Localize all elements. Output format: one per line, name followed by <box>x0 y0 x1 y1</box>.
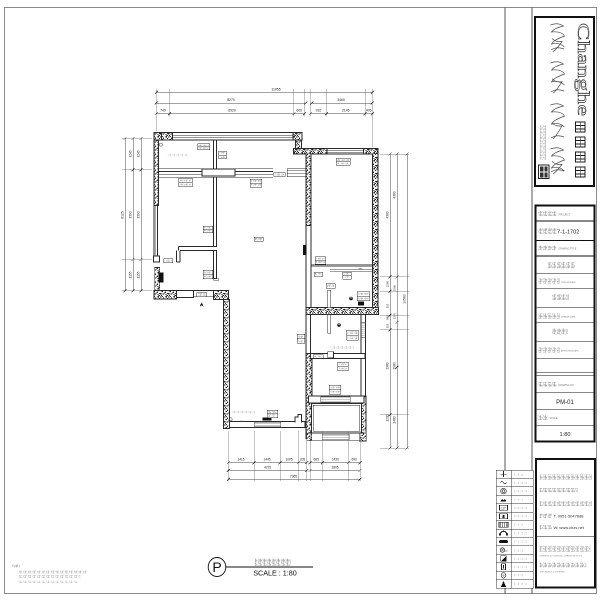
svg-text:1240: 1240 <box>137 150 141 157</box>
svg-text:APPROVED/DATE: APPROVED/DATE <box>561 350 579 353</box>
svg-text:6920: 6920 <box>228 109 236 113</box>
svg-text:2980: 2980 <box>386 362 390 369</box>
svg-text:1560: 1560 <box>386 280 390 287</box>
svg-text:1560: 1560 <box>393 284 397 291</box>
svg-text:SCALE:: SCALE: <box>550 417 559 420</box>
svg-text:205: 205 <box>300 458 306 462</box>
svg-text:DRAWINGS NOT DATED ALL DIMENSI: DRAWINGS NOT DATED ALL DIMENSIONS IN SIT… <box>540 555 584 558</box>
svg-text:4300: 4300 <box>386 211 390 218</box>
svg-text:4360: 4360 <box>393 191 397 198</box>
svg-text:1240: 1240 <box>129 150 133 157</box>
svg-text:3460: 3460 <box>337 98 345 102</box>
svg-text:7365: 7365 <box>290 474 297 478</box>
svg-text:2145: 2145 <box>342 109 350 113</box>
svg-text:1445: 1445 <box>263 458 270 462</box>
svg-text:DRAWING TITLE: DRAWING TITLE <box>559 248 577 251</box>
svg-text:1415: 1415 <box>237 458 244 462</box>
svg-text:690: 690 <box>352 458 358 462</box>
svg-text:3390: 3390 <box>137 211 141 218</box>
svg-text:LP: LP <box>502 506 506 510</box>
svg-text:1430: 1430 <box>332 458 339 462</box>
svg-text:4215: 4215 <box>264 466 271 470</box>
svg-text:1155: 1155 <box>129 271 133 278</box>
svg-text:P: P <box>212 559 221 575</box>
svg-text:1155: 1155 <box>137 271 141 278</box>
svg-text:515: 515 <box>386 303 390 308</box>
svg-text:2805: 2805 <box>331 466 338 470</box>
svg-text:1570: 1570 <box>393 312 397 319</box>
svg-text:PROJECT: PROJECT <box>559 212 572 216</box>
svg-text:2480: 2480 <box>393 416 397 423</box>
svg-text:1230: 1230 <box>386 414 390 421</box>
svg-text:DRAWING NO.: DRAWING NO. <box>559 384 575 387</box>
svg-text:THE DRAWING IS DIFFERENT: THE DRAWING IS DIFFERENT <box>540 571 566 574</box>
svg-text:6125: 6125 <box>121 211 125 219</box>
svg-text:11955: 11955 <box>271 87 280 91</box>
svg-text:840: 840 <box>386 315 390 320</box>
svg-text:PM-01: PM-01 <box>556 400 574 406</box>
svg-text:SCALE : 1:80: SCALE : 1:80 <box>253 569 297 578</box>
svg-text:DESIGN/DATE: DESIGN/DATE <box>561 281 576 284</box>
svg-text:1005: 1005 <box>285 458 292 462</box>
svg-text:DRAWN/DATE: DRAWN/DATE <box>561 316 576 319</box>
svg-text:600: 600 <box>296 109 302 113</box>
svg-text:850: 850 <box>359 268 364 271</box>
svg-text:10560: 10560 <box>403 294 407 304</box>
svg-text:Changhe: Changhe <box>574 23 593 116</box>
svg-text:B: B <box>503 574 505 578</box>
svg-text:W: www.chzs.net: W: www.chzs.net <box>554 525 585 530</box>
svg-text:685: 685 <box>314 458 320 462</box>
svg-text:8270: 8270 <box>227 98 235 102</box>
svg-text:740: 740 <box>160 109 166 113</box>
svg-text:910: 910 <box>316 109 322 113</box>
svg-text:7-1-1702: 7-1-1702 <box>557 230 579 236</box>
svg-text:1:80: 1:80 <box>560 432 571 438</box>
svg-text:3390: 3390 <box>129 211 133 218</box>
svg-text:405: 405 <box>366 109 372 113</box>
svg-text:T: 0951-5047688: T: 0951-5047688 <box>554 514 585 519</box>
svg-text:515: 515 <box>386 323 390 328</box>
svg-text:2980: 2980 <box>393 362 397 369</box>
